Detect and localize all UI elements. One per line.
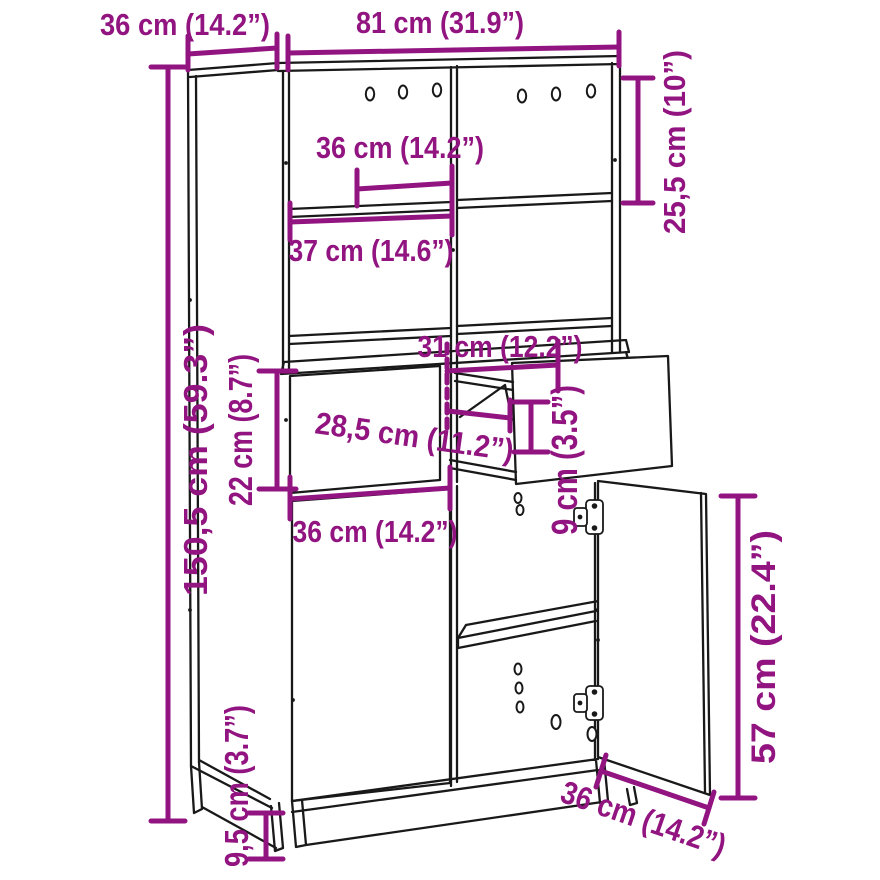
screw-dot	[291, 698, 295, 702]
shelf-pin-hole	[552, 88, 560, 101]
dim-label-door-height: 57 cm (22.4”)	[745, 530, 783, 764]
shelf-pin-hole	[518, 90, 526, 103]
shelf-pin-hole	[515, 493, 522, 503]
screw-dot	[284, 418, 288, 422]
screw-dot	[284, 161, 288, 165]
dim-label-base-height: 9,5 cm (3.7”)	[218, 705, 255, 867]
shelf-pin-hole	[433, 84, 441, 97]
dim-label-total-width: 81 cm (31.9”)	[356, 5, 524, 40]
hinge-screw	[592, 503, 598, 509]
shelf-pin-hole	[516, 683, 523, 694]
hinge-screw	[592, 711, 598, 717]
dim-label-top-compartment-height: 25,5 cm (10”)	[657, 50, 692, 234]
shelf-pin-hole	[515, 664, 522, 675]
shelf-pin-hole	[588, 727, 597, 741]
screw-dot	[188, 298, 192, 302]
dim-label-drawer-front-height: 22 cm (8.7”)	[222, 354, 259, 506]
shelf-pin-hole	[587, 85, 595, 98]
screw-dot	[596, 638, 600, 642]
dim-label-total-height: 150,5 cm (59.3”)	[177, 324, 214, 596]
screw-dot	[613, 158, 617, 162]
dim-label-drawer-width: 36 cm (14.2”)	[293, 514, 458, 549]
diagram-canvas: 36 cm (14.2”) 81 cm (31.9”) 25,5 cm (10”…	[0, 0, 880, 880]
dim-label-drawer-opening-height: 9 cm (3.5”)	[544, 385, 585, 535]
shelf-pin-hole	[517, 505, 524, 515]
dim-label-top-depth: 36 cm (14.2”)	[100, 7, 270, 42]
hinge-screw	[578, 701, 583, 706]
hinge-screw	[592, 525, 598, 531]
screw-dot	[188, 608, 192, 612]
dim-label-upper-compartment-width: 36 cm (14.2”)	[316, 130, 484, 165]
dim-label-drawer-opening-width: 31 cm (12.2”)	[418, 329, 583, 364]
hinge-screw	[592, 689, 598, 695]
right-drawer-front-open	[512, 356, 672, 484]
shelf-pin-hole	[399, 86, 407, 99]
cabinet-dimension-diagram: 36 cm (14.2”) 81 cm (31.9”) 25,5 cm (10”…	[0, 0, 880, 880]
shelf-pin-hole	[517, 702, 524, 713]
shelf-pin-hole	[366, 88, 374, 101]
dim-label-middle-shelf-width: 37 cm (14.6”)	[289, 233, 454, 268]
right-door-open	[598, 481, 710, 795]
shelf-pin-hole	[552, 715, 561, 729]
